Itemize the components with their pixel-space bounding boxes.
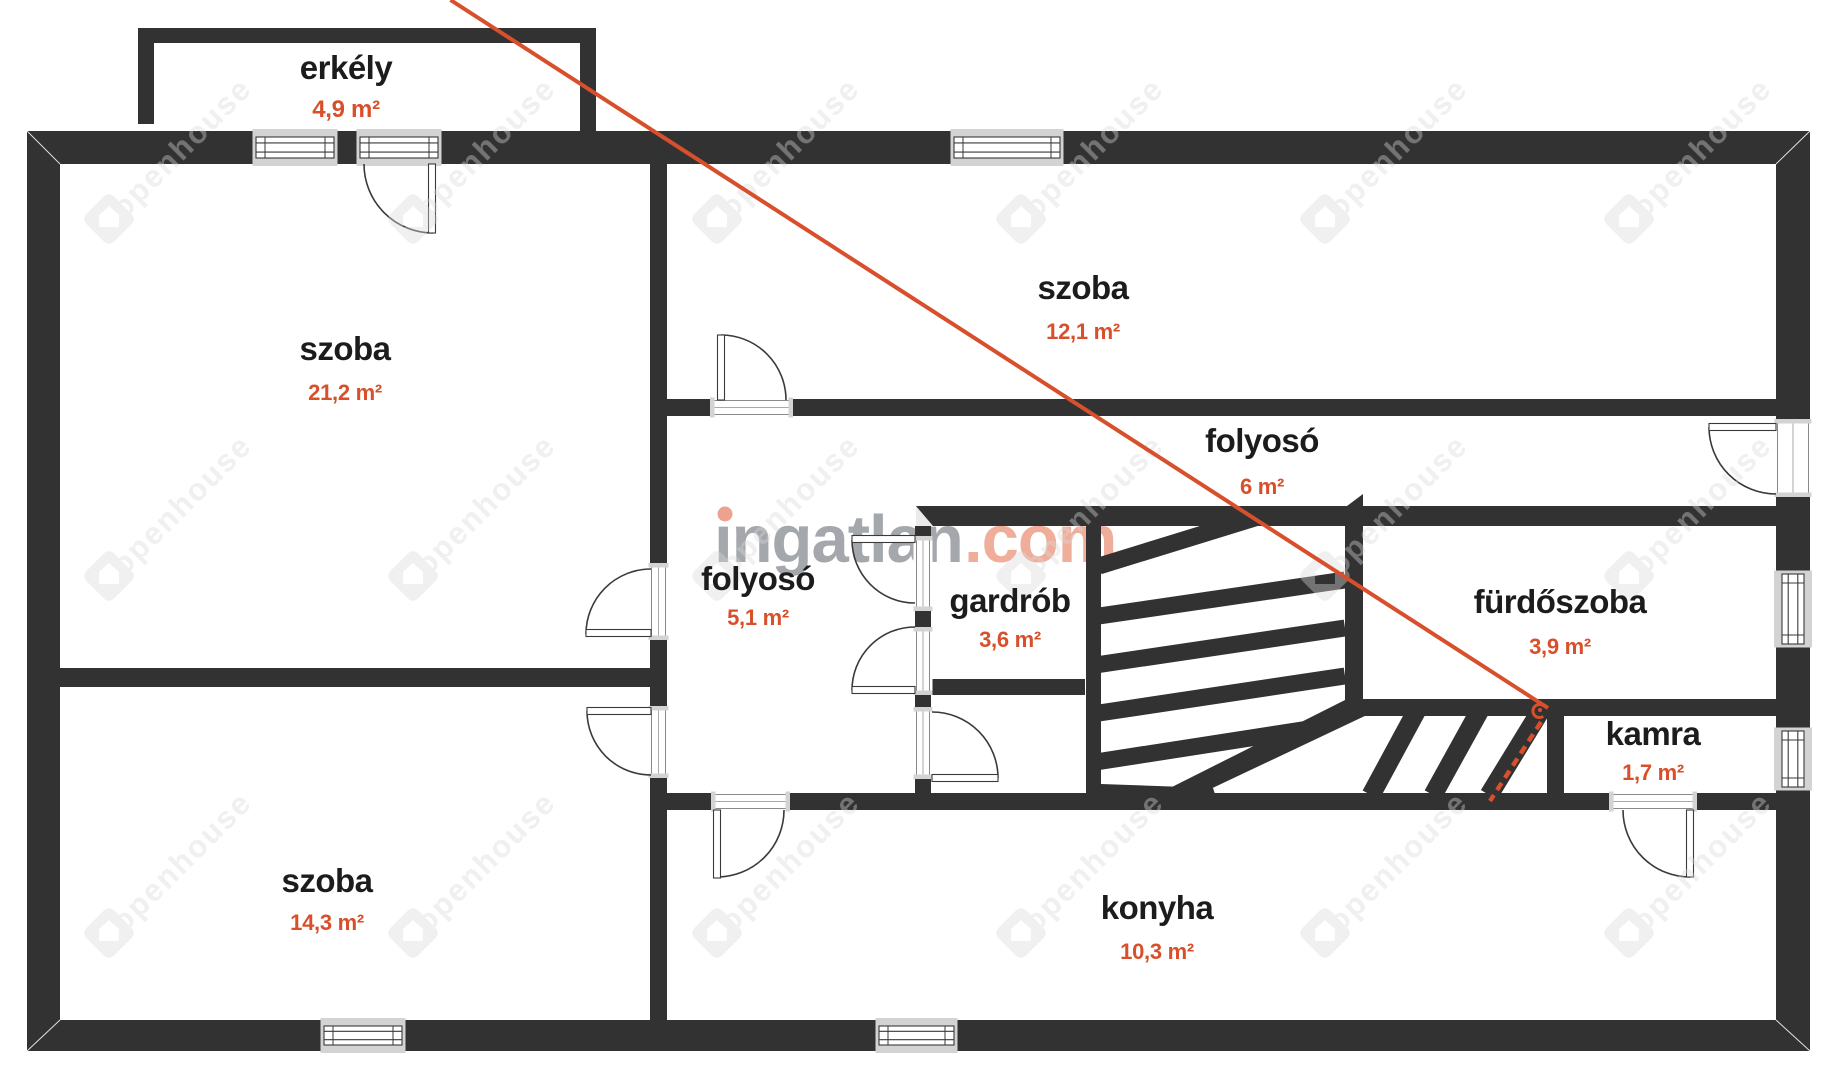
svg-text:1,7 m²: 1,7 m² bbox=[1622, 760, 1684, 785]
svg-text:folyosó: folyosó bbox=[1205, 422, 1319, 459]
svg-text:konyha: konyha bbox=[1101, 889, 1215, 926]
svg-text:fürdőszoba: fürdőszoba bbox=[1474, 583, 1648, 620]
svg-text:gardrób: gardrób bbox=[949, 582, 1070, 619]
svg-text:21,2 m²: 21,2 m² bbox=[308, 380, 382, 405]
svg-text:szoba: szoba bbox=[281, 862, 373, 899]
svg-text:folyosó: folyosó bbox=[701, 560, 815, 597]
svg-text:3,6 m²: 3,6 m² bbox=[979, 627, 1041, 652]
svg-text:szoba: szoba bbox=[299, 330, 391, 367]
svg-text:6 m²: 6 m² bbox=[1240, 474, 1284, 499]
svg-text:14,3 m²: 14,3 m² bbox=[290, 910, 364, 935]
svg-text:4,9 m²: 4,9 m² bbox=[312, 96, 380, 123]
svg-text:erkély: erkély bbox=[300, 49, 394, 86]
svg-text:3,9 m²: 3,9 m² bbox=[1529, 634, 1591, 659]
svg-text:12,1 m²: 12,1 m² bbox=[1046, 319, 1120, 344]
svg-text:5,1 m²: 5,1 m² bbox=[727, 605, 789, 630]
svg-text:10,3 m²: 10,3 m² bbox=[1120, 939, 1194, 964]
svg-text:kamra: kamra bbox=[1606, 715, 1702, 752]
svg-text:szoba: szoba bbox=[1037, 269, 1129, 306]
